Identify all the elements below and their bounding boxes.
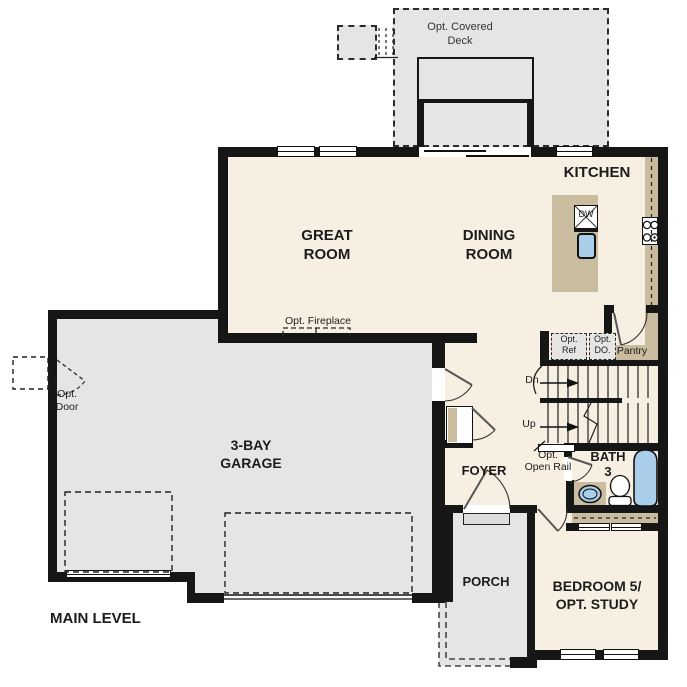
- wall-closet-jamb-left: [566, 523, 578, 531]
- hall-closet-shelf: [448, 408, 457, 442]
- island-sink-divider: [574, 229, 598, 232]
- window: [556, 146, 593, 157]
- window: [277, 146, 315, 157]
- wall-bath-left-b: [566, 480, 574, 506]
- label-great-room: GREAT ROOM: [276, 227, 378, 265]
- label-kitchen: KITCHEN: [537, 164, 657, 183]
- label-dining-room: DINING ROOM: [438, 227, 540, 265]
- label-garage: 3-BAY GARAGE: [189, 437, 313, 472]
- window: [560, 649, 596, 660]
- garage-floor: [57, 319, 187, 572]
- wall-south-b: [510, 505, 537, 513]
- deck-stair-landing: [417, 57, 534, 101]
- floor-plan: Opt. Ref Opt. DO.: [0, 0, 687, 687]
- wall-garage-top: [48, 310, 226, 319]
- window-pane-line: [278, 151, 314, 152]
- opt-refrigerator-box: Opt. Ref: [551, 333, 587, 360]
- label-porch: PORCH: [452, 574, 520, 590]
- wall-stair-rail: [540, 398, 622, 403]
- label-bath: BATH 3: [583, 450, 633, 480]
- wall-porch-corner: [510, 657, 537, 668]
- bedroom-closet-shelf: [572, 513, 658, 523]
- label-opt-fireplace: Opt. Fireplace: [259, 315, 377, 328]
- wall-closet-jamb-right: [642, 523, 658, 531]
- wall-stair-post: [540, 331, 549, 366]
- range-stove: [642, 217, 658, 245]
- label-opt-door: Opt. Door: [46, 388, 88, 413]
- label-main-level: MAIN LEVEL: [50, 610, 210, 629]
- front-door-sill: [463, 513, 510, 525]
- front-door-gap: [463, 505, 510, 513]
- wall-garage-right-upper: [432, 340, 445, 368]
- closet-door-line: [579, 527, 609, 528]
- wall-garage-right-lower: [432, 400, 445, 602]
- window: [319, 146, 357, 157]
- wall-stair-top: [549, 360, 658, 366]
- closet-door-line: [612, 527, 641, 528]
- garage-entry-door-gap: [432, 368, 445, 401]
- label-deck: Opt. Covered Deck: [397, 21, 523, 49]
- window-pane-line: [604, 654, 638, 655]
- garage-door-single: [66, 570, 171, 578]
- wall-south-c: [566, 505, 668, 513]
- hall-stairs-bath-floor: [445, 343, 658, 513]
- label-foyer: FOYER: [452, 463, 516, 479]
- label-pantry: Pantry: [606, 345, 658, 358]
- label-stairs-down: Dn: [520, 374, 544, 387]
- closet-bypass-door: [578, 523, 610, 531]
- garage-door-line: [67, 574, 170, 575]
- wall-garage-left: [48, 310, 57, 582]
- wall-pantry-top-a: [604, 305, 614, 313]
- deck-side-landing: [337, 25, 377, 60]
- island-sink: [577, 233, 596, 259]
- wall-south-a: [437, 505, 463, 513]
- label-bedroom: BEDROOM 5/ OPT. STUDY: [532, 578, 662, 613]
- label-stairs-up: Up: [517, 418, 541, 431]
- opt-door-stoop-outline: [13, 357, 48, 389]
- deck-rail-line: [420, 101, 530, 103]
- pantry-shelf-right: [645, 313, 658, 345]
- closet-bypass-door: [611, 523, 642, 531]
- window-pane-line: [557, 151, 592, 152]
- garage-door-double-gap: [224, 593, 412, 603]
- wall-pantry-top-b: [646, 305, 668, 313]
- window-pane-line: [561, 654, 595, 655]
- label-dishwasher: DW: [574, 209, 598, 220]
- window: [603, 649, 639, 660]
- wall-bedroom-bottom: [527, 650, 668, 660]
- label-opt-open-rail: Opt. Open Rail: [511, 449, 585, 473]
- deck-post-right: [527, 100, 534, 147]
- deck-post-left: [417, 100, 424, 147]
- slider-door-gap: [419, 147, 531, 157]
- window-pane-line: [320, 151, 356, 152]
